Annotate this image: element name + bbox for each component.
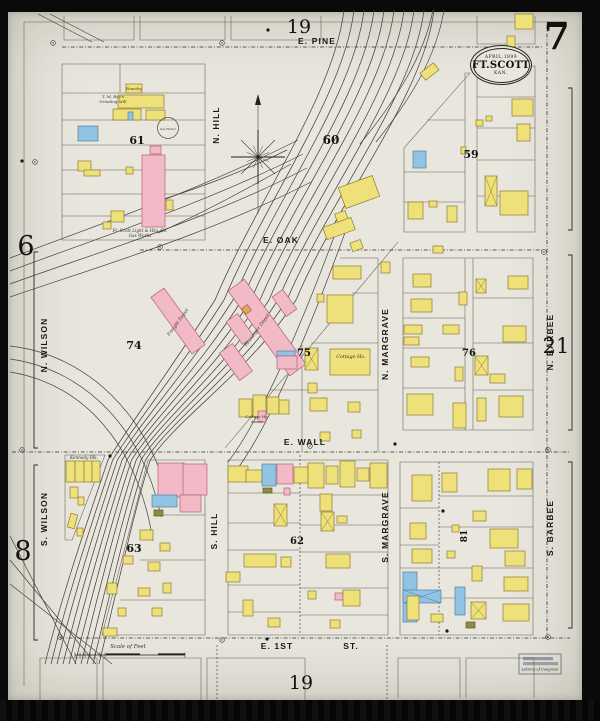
hydrant-dot xyxy=(393,442,396,445)
building xyxy=(503,604,529,621)
building xyxy=(370,463,387,488)
railroad-track xyxy=(51,10,354,664)
building xyxy=(92,461,100,482)
building xyxy=(459,292,467,305)
building xyxy=(504,577,528,591)
building xyxy=(411,357,429,367)
building xyxy=(111,211,124,222)
library-stamp-label: Library of Congress xyxy=(521,668,558,672)
building xyxy=(180,495,201,512)
building xyxy=(66,461,75,482)
library-stamp-smudge xyxy=(523,662,558,665)
building xyxy=(447,551,455,558)
building xyxy=(429,201,437,207)
building xyxy=(263,488,272,493)
building xyxy=(113,109,141,120)
building xyxy=(413,151,426,168)
street-label-s-margrave: S. MARGRAVE xyxy=(380,491,390,562)
building xyxy=(412,549,432,563)
building xyxy=(447,206,457,222)
building xyxy=(490,374,505,383)
building xyxy=(308,591,316,599)
building xyxy=(490,529,518,548)
street-label-s-hill: S. HILL xyxy=(209,513,219,550)
building xyxy=(326,554,350,568)
building xyxy=(308,463,324,488)
stamp-state: KAN. xyxy=(494,71,508,76)
building xyxy=(433,246,443,253)
building xyxy=(138,588,150,596)
sheet-number: 7 xyxy=(544,14,584,58)
building xyxy=(154,510,163,516)
crossing-symbol-dot xyxy=(547,449,548,450)
block-bracket xyxy=(34,252,38,448)
building xyxy=(140,530,153,540)
stamp-city: FT.SCOTT xyxy=(472,60,530,71)
building xyxy=(78,161,91,171)
building xyxy=(343,590,360,606)
block-number-81: 81 xyxy=(460,530,470,543)
building xyxy=(431,614,443,622)
hydrant-dot xyxy=(20,159,23,162)
building xyxy=(77,528,83,536)
crossing-symbol-dot xyxy=(159,246,160,247)
crossing-symbol-dot xyxy=(59,636,60,637)
building xyxy=(505,551,525,566)
lot-line xyxy=(103,658,201,700)
railroad-track-curve xyxy=(10,359,161,517)
building xyxy=(142,155,165,227)
building xyxy=(413,274,431,287)
building xyxy=(337,516,347,523)
building xyxy=(488,469,510,491)
building xyxy=(284,488,290,495)
library-stamp-smudge xyxy=(523,657,553,660)
margin-number-8: 8 xyxy=(14,536,31,567)
building xyxy=(503,326,526,342)
building xyxy=(118,608,126,616)
railroad-track-curve xyxy=(10,560,96,664)
building xyxy=(226,572,240,582)
building xyxy=(499,396,523,417)
block-bracket xyxy=(568,462,572,628)
building xyxy=(228,466,248,482)
crossing-symbol-dot xyxy=(547,636,548,637)
block-number-75: 75 xyxy=(297,348,311,359)
street-label-n-hill: N. HILL xyxy=(211,106,221,143)
building xyxy=(327,295,353,323)
building xyxy=(330,349,370,375)
building xyxy=(473,511,486,521)
building xyxy=(476,120,483,126)
building xyxy=(357,468,369,481)
building xyxy=(150,146,161,154)
building xyxy=(78,126,98,141)
compass-star-icon xyxy=(258,140,275,157)
building xyxy=(67,513,77,528)
lot-line xyxy=(64,16,134,40)
building xyxy=(103,222,111,229)
building xyxy=(352,430,361,438)
building xyxy=(148,562,160,571)
building xyxy=(107,583,117,594)
street-label-n-margrave: N. MARGRAVE xyxy=(380,308,390,380)
building xyxy=(466,622,475,628)
landmark-label-annex: Annex xyxy=(250,419,264,424)
building xyxy=(262,464,276,486)
building xyxy=(158,463,184,497)
building xyxy=(453,403,466,428)
margin-number-19: 19 xyxy=(287,16,311,38)
title-stamp: APRIL.1899 FT.SCOTT KAN. xyxy=(470,45,532,85)
street-label-e-wall: E. WALL xyxy=(284,437,326,447)
building xyxy=(515,14,533,29)
crossing-symbol-dot xyxy=(221,42,222,43)
building xyxy=(267,397,279,414)
building xyxy=(404,337,419,345)
building xyxy=(330,620,340,628)
compass-center xyxy=(257,156,259,158)
building xyxy=(407,394,433,415)
building xyxy=(338,176,379,209)
building xyxy=(268,618,280,627)
building xyxy=(84,170,100,176)
building xyxy=(412,475,432,501)
building xyxy=(442,473,457,492)
building xyxy=(320,494,332,511)
street-label-n-wilson: N. WILSON xyxy=(39,318,49,373)
building xyxy=(146,110,165,120)
crossing-symbol-dot xyxy=(21,449,22,450)
crossing-symbol-dot xyxy=(221,639,222,640)
building xyxy=(407,596,419,620)
block-bracket xyxy=(34,465,38,640)
building xyxy=(126,167,133,174)
building xyxy=(70,487,78,498)
building xyxy=(163,583,171,593)
north-arrow-icon xyxy=(255,94,261,105)
street-label-e-pine: E. PINE xyxy=(298,36,336,46)
building xyxy=(244,554,276,567)
building xyxy=(477,398,486,421)
map-canvas: Library of Congress196821196159607475766… xyxy=(0,0,600,721)
street-label-s-wilson: S. WILSON xyxy=(39,492,49,546)
building xyxy=(500,191,528,215)
crossing-symbol-dot xyxy=(34,161,35,162)
hydrant-dot xyxy=(266,28,269,31)
building xyxy=(246,470,262,482)
building xyxy=(75,461,84,482)
building xyxy=(517,124,530,141)
street-label-st: ST. xyxy=(343,641,359,651)
block-number-59: 59 xyxy=(463,148,478,161)
building xyxy=(317,294,324,302)
building xyxy=(333,266,361,279)
block-number-60: 60 xyxy=(323,133,340,147)
building xyxy=(472,566,482,581)
building xyxy=(103,628,117,636)
crossing-symbol-dot xyxy=(543,251,544,252)
landmark-label-grinding-mill: Grinding Mill xyxy=(99,99,127,104)
landmark-label-cottage-ho: Cottage Ho. xyxy=(336,354,366,360)
building xyxy=(420,63,439,81)
street-label-e-oak: E. OAK xyxy=(263,235,299,245)
landmark-label-scale-of-feet: Scale of Feet xyxy=(110,644,146,650)
building xyxy=(78,497,84,505)
building xyxy=(279,400,289,414)
building xyxy=(486,116,492,121)
building xyxy=(340,461,355,487)
building xyxy=(294,467,308,483)
railroad-track-curve xyxy=(360,10,433,144)
railroad-track-curve xyxy=(38,14,92,42)
building xyxy=(452,525,459,532)
block-bracket xyxy=(568,88,572,230)
crossing-symbol-dot xyxy=(52,42,53,43)
building xyxy=(84,461,92,482)
building xyxy=(455,587,465,615)
hydrant-dot xyxy=(441,509,444,512)
building xyxy=(183,464,207,495)
building xyxy=(411,299,432,312)
street-label-n-barbee: N. BARBEE xyxy=(545,314,555,371)
building xyxy=(128,112,133,120)
lot-line xyxy=(398,658,460,698)
scale-bar-segment xyxy=(158,653,185,655)
hydrant-dot xyxy=(108,454,111,457)
building xyxy=(517,469,532,489)
building xyxy=(326,466,338,484)
margin-number-19: 19 xyxy=(289,672,313,694)
margin-number-6: 6 xyxy=(17,231,34,262)
building xyxy=(277,351,295,356)
building xyxy=(512,99,533,116)
building xyxy=(310,398,327,411)
railroad-track-curve xyxy=(376,10,444,142)
hydrant-dot xyxy=(445,629,448,632)
landmark-label-gas-holder: Gas Holder xyxy=(160,127,177,131)
landmark-label-kennedy-blk: Kennedy Blk. xyxy=(69,455,98,460)
building xyxy=(348,402,360,412)
block-number-62: 62 xyxy=(290,536,304,547)
building xyxy=(152,608,162,616)
building xyxy=(408,202,423,219)
landmark-label-gas-works: Gas Works xyxy=(129,233,152,238)
lot-line xyxy=(140,16,225,40)
building xyxy=(308,383,317,393)
compass-star-icon xyxy=(241,140,258,157)
scale-bar-segment xyxy=(106,653,140,655)
building xyxy=(381,262,390,273)
building xyxy=(220,344,253,381)
building xyxy=(152,495,177,507)
building xyxy=(160,543,170,551)
building xyxy=(166,200,173,210)
building xyxy=(443,325,459,334)
building xyxy=(277,464,293,484)
street-label-e-1st: E. 1ST xyxy=(261,641,294,651)
building xyxy=(508,276,528,289)
block-number-74: 74 xyxy=(126,339,142,352)
block-number-61: 61 xyxy=(129,134,144,147)
building xyxy=(455,367,463,381)
building xyxy=(243,600,253,616)
railroad-track-curve xyxy=(50,14,104,42)
street-label-s-barbee: S. BARBEE xyxy=(545,500,555,556)
lot-line xyxy=(40,658,97,700)
building xyxy=(281,557,291,567)
building xyxy=(410,523,426,539)
building xyxy=(404,325,422,334)
stamp-date: APRIL.1899 xyxy=(485,55,517,60)
landmark-label-foundry: Foundry xyxy=(125,86,143,91)
block-number-63: 63 xyxy=(126,542,141,555)
building xyxy=(277,356,297,369)
block-number-76: 76 xyxy=(462,348,476,359)
compass-star-icon xyxy=(241,157,258,174)
sanborn-map-page: Library of Congress196821196159607475766… xyxy=(0,0,600,721)
building xyxy=(123,556,133,564)
